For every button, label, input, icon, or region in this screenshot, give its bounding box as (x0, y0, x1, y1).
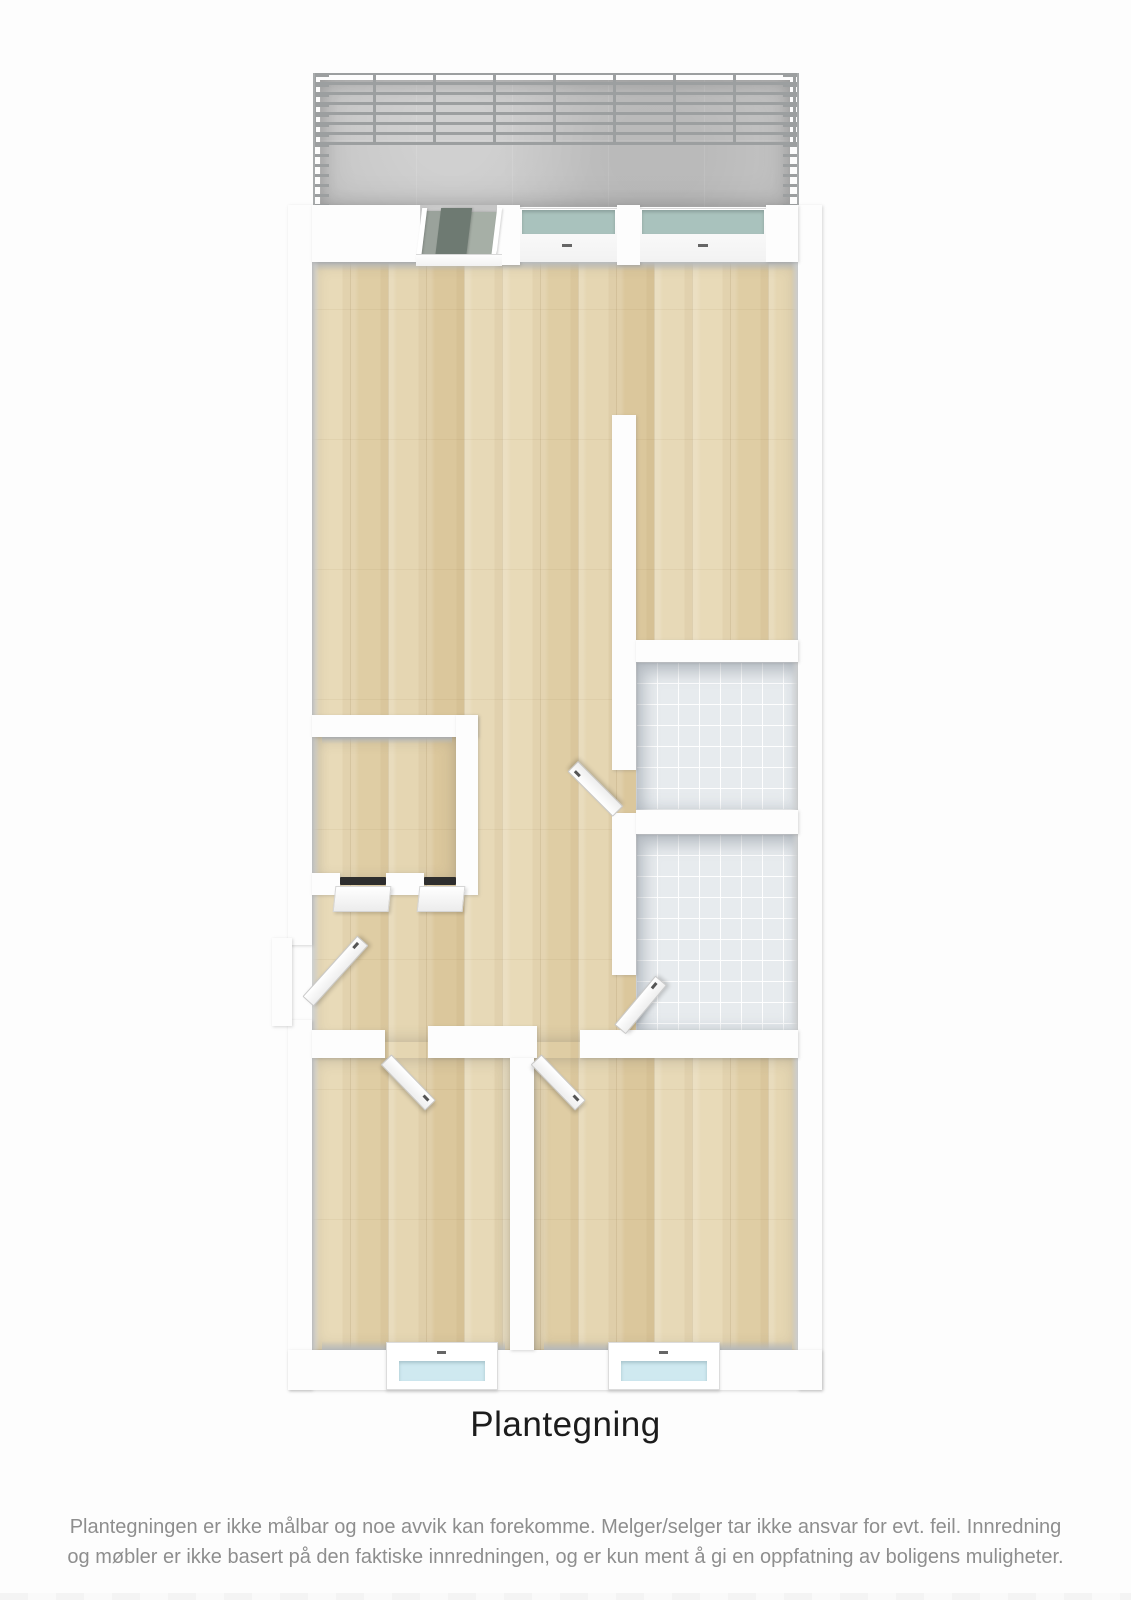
balcony-sliding-door-pane-dark (435, 208, 472, 259)
balcony-railing-top (313, 73, 797, 145)
balcony-railing-left (313, 73, 329, 207)
disclaimer-line-1: Plantegningen er ikke målbar og noe avvi… (0, 1512, 1131, 1542)
window-bedroom-2-glass (621, 1361, 707, 1381)
window-bedroom-2 (608, 1342, 720, 1390)
page-title: Plantegning (0, 1405, 1131, 1445)
door-handle (574, 770, 581, 777)
wall-outer-left-upper (288, 205, 312, 945)
wall-bedrooms-top (312, 1030, 385, 1058)
window-top-2-handle (698, 244, 708, 247)
wall-face (312, 262, 798, 271)
wall-closet-right (456, 715, 478, 895)
closet-door-sill (333, 886, 392, 912)
window-bedroom-1 (386, 1342, 498, 1390)
balcony-door-sill (416, 254, 502, 266)
wall-bedrooms-top (580, 1030, 798, 1058)
wall-face (791, 262, 798, 1350)
wall-face (312, 262, 319, 1350)
door-handle (651, 982, 658, 989)
wall-hall-vertical-upper (612, 415, 636, 770)
wall-top-jamb (617, 205, 640, 265)
closet-sliding-track (424, 877, 456, 885)
door-handle (352, 942, 359, 949)
bathroom-1-floor (636, 662, 798, 810)
wall-outer-left-lower (288, 1020, 312, 1390)
wall-face (322, 737, 452, 744)
wall-bathroom-1-top (636, 640, 798, 662)
wall-top-segment (766, 205, 798, 262)
door-handle (572, 1094, 579, 1101)
window-bedroom-1-handle (437, 1351, 446, 1354)
wall-outer-bottom (288, 1350, 822, 1390)
floor-plan-page: Plantegning Plantegningen er ikke målbar… (0, 0, 1131, 1600)
window-bedroom-2-handle (659, 1351, 668, 1354)
wall-between-bedrooms (510, 1058, 534, 1350)
window-bedroom-1-glass (399, 1361, 485, 1381)
wall-hall-vertical-lower (612, 813, 636, 975)
wall-outer-right (798, 205, 822, 1390)
closet-door-sill (417, 886, 466, 912)
wall-closet-top (312, 715, 478, 737)
window-top-1-handle (562, 244, 572, 247)
page-edge-artifact (0, 1593, 1131, 1600)
bathroom-2-floor (636, 834, 798, 1030)
wall-top-segment (312, 205, 420, 262)
wall-between-bathrooms (636, 810, 798, 834)
closet-sliding-track (340, 877, 386, 885)
window-top-1-glass (522, 210, 615, 234)
door-handle (422, 1094, 429, 1101)
balcony-railing-right (783, 73, 799, 207)
disclaimer-line-2: og møbler er ikke basert på den faktiske… (0, 1542, 1131, 1572)
entry-landing (272, 938, 292, 1026)
disclaimer-text: Plantegningen er ikke målbar og noe avvi… (0, 1512, 1131, 1572)
wall-bedrooms-top (428, 1026, 537, 1058)
window-top-2-glass (642, 210, 764, 234)
